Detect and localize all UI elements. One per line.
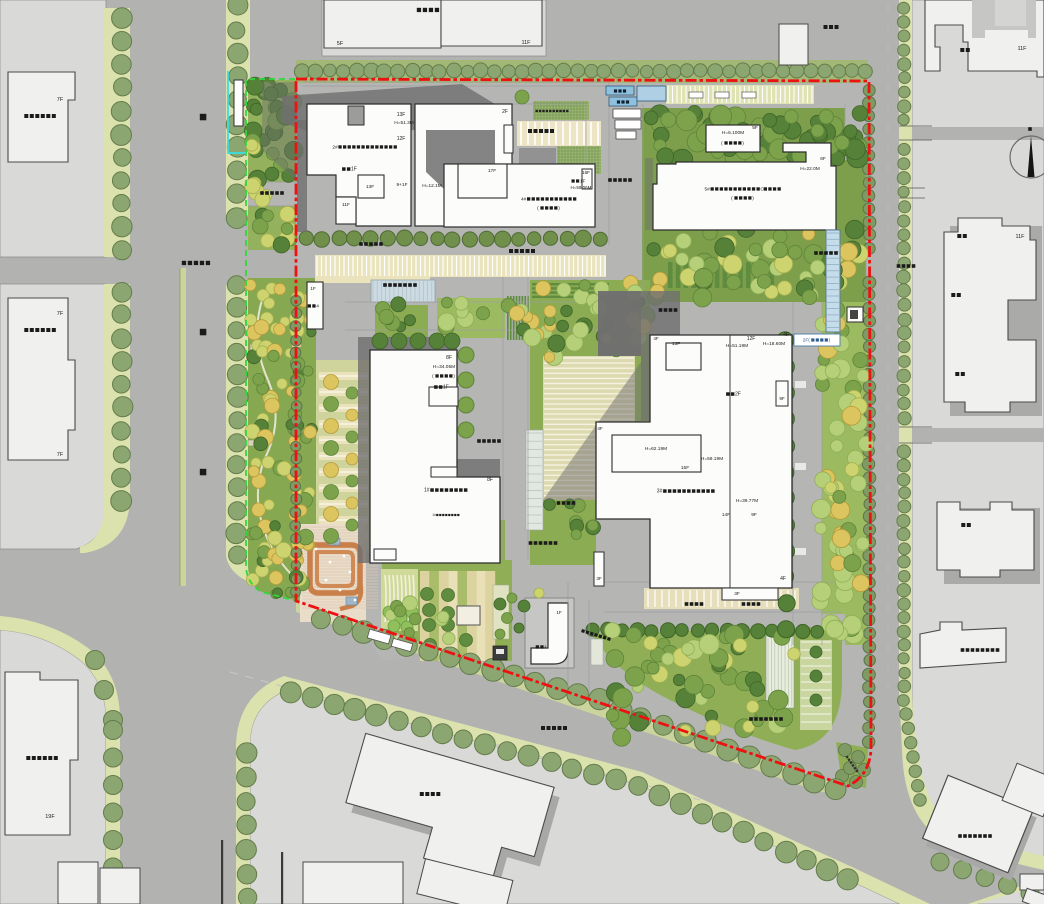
svg-text:H=6.100M: H=6.100M — [722, 130, 744, 136]
svg-text:3#: 3# — [657, 489, 663, 495]
svg-text:5F: 5F — [752, 125, 758, 131]
svg-text:2F: 2F — [735, 392, 741, 398]
svg-text:3F: 3F — [734, 591, 740, 597]
svg-text:1F: 1F — [443, 385, 449, 391]
svg-text:H=12.1M: H=12.1M — [422, 183, 442, 189]
svg-text:2#: 2# — [332, 145, 338, 151]
svg-text:15F: 15F — [681, 465, 689, 471]
svg-text:8F: 8F — [446, 355, 452, 361]
svg-text:12F: 12F — [747, 336, 756, 342]
svg-text:H=39.77M: H=39.77M — [736, 498, 758, 504]
svg-text:H=59.06M: H=59.06M — [571, 185, 592, 190]
svg-text:H=62.19M: H=62.19M — [645, 446, 667, 452]
svg-text:H=51.3M: H=51.3M — [394, 120, 414, 126]
svg-text:H=34.05M: H=34.05M — [433, 364, 455, 370]
svg-text:11F: 11F — [521, 40, 531, 46]
svg-text:11F: 11F — [1015, 234, 1025, 240]
svg-text:8F: 8F — [487, 477, 493, 483]
svg-text:3F: 3F — [596, 576, 602, 581]
svg-text:9F: 9F — [751, 512, 757, 518]
svg-text:11F: 11F — [1017, 46, 1027, 52]
svg-text:7F: 7F — [57, 97, 64, 103]
svg-text:11F: 11F — [342, 202, 350, 208]
svg-text:1F: 1F — [556, 610, 562, 615]
svg-text:5#: 5# — [705, 187, 711, 193]
svg-text:4F: 4F — [653, 336, 659, 341]
svg-text:4: 4 — [316, 304, 319, 310]
svg-text:14F: 14F — [722, 512, 730, 518]
svg-text:7F: 7F — [57, 452, 64, 458]
svg-text:13F: 13F — [397, 112, 406, 118]
svg-text:6F: 6F — [820, 156, 826, 162]
svg-text:1F: 1F — [310, 286, 316, 291]
svg-text:1F: 1F — [351, 167, 357, 173]
svg-text:H=59.19M: H=59.19M — [701, 456, 723, 462]
svg-text:9+1F: 9+1F — [396, 182, 407, 188]
svg-text:5F: 5F — [337, 41, 344, 47]
svg-text:19F: 19F — [45, 814, 55, 820]
svg-text:H=18.60M: H=18.60M — [763, 341, 785, 347]
svg-text:4F: 4F — [597, 426, 603, 431]
svg-text:13F: 13F — [672, 341, 680, 347]
svg-text:H=51.19M: H=51.19M — [726, 343, 748, 349]
svg-text:7F: 7F — [57, 311, 64, 317]
svg-text:1#: 1# — [432, 513, 436, 517]
svg-text:1#: 1# — [424, 488, 430, 494]
svg-text:2F: 2F — [502, 109, 508, 115]
svg-text:12F: 12F — [397, 136, 406, 142]
svg-text:4F: 4F — [780, 576, 786, 582]
svg-text:1F: 1F — [580, 179, 586, 185]
svg-text:4F: 4F — [783, 332, 789, 338]
svg-text:H=22.0M: H=22.0M — [800, 166, 820, 172]
svg-text:16F: 16F — [582, 170, 590, 175]
svg-text:2F(: 2F( — [803, 338, 811, 344]
svg-text:13F: 13F — [366, 184, 374, 190]
svg-text:1: 1 — [544, 645, 547, 651]
svg-text:4#: 4# — [521, 197, 527, 203]
svg-text:9F: 9F — [779, 396, 785, 401]
svg-text:17F: 17F — [488, 168, 496, 174]
